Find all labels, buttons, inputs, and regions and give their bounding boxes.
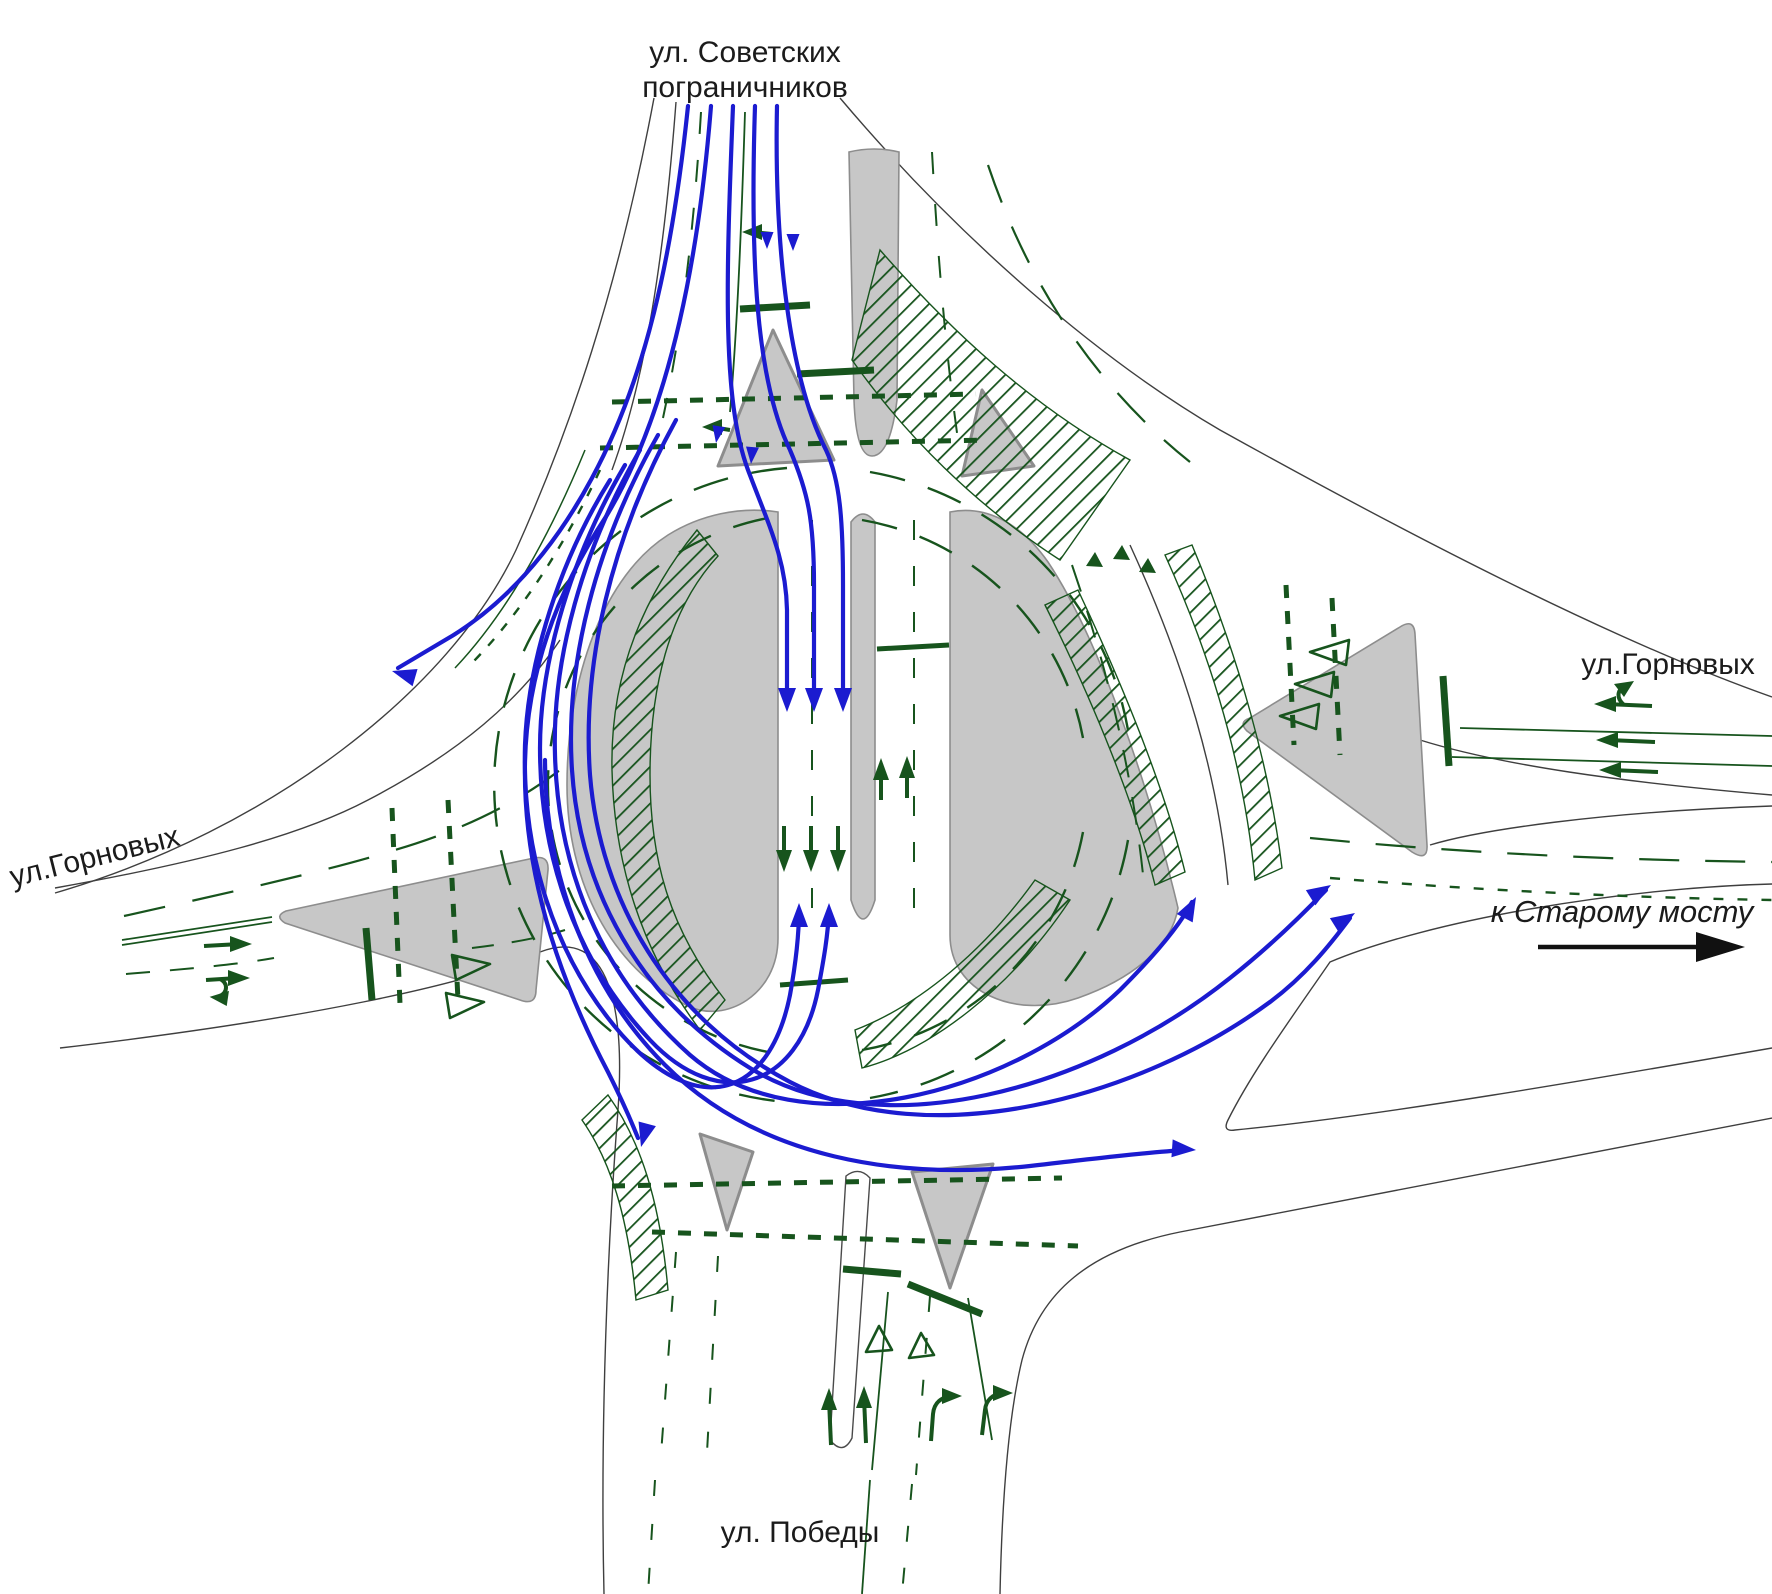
crosswalk-south-a	[612, 1178, 1062, 1186]
lane-arrow-head	[230, 936, 252, 952]
lane-arrow-head	[1596, 732, 1618, 748]
route-arrowhead	[778, 688, 796, 712]
stopline-south-2	[908, 1284, 982, 1314]
east-entry-line-2	[1452, 757, 1772, 766]
route-arrowhead	[834, 688, 852, 712]
route-arrowhead	[1306, 877, 1336, 905]
edge-northwest	[55, 98, 654, 893]
chevron-zone-south-entry	[582, 1095, 668, 1300]
stopline-north-2	[797, 370, 874, 374]
edge-southwest	[60, 947, 620, 1594]
edge-east-entry-bottom	[1420, 740, 1772, 795]
lane-arrow-head	[210, 984, 235, 1009]
lane-arrow-head	[899, 756, 915, 778]
direction-label-east: к Старому мосту	[1491, 894, 1756, 929]
lane-arrow-head	[803, 850, 819, 872]
roundabout-scheme: ул. Советских пограничников ул.Горновых …	[0, 0, 1772, 1594]
route-arrowhead	[1330, 905, 1360, 933]
yield-tick-icon	[1113, 545, 1130, 560]
west-entry-dash	[126, 958, 274, 974]
corridor-median-island	[851, 514, 875, 919]
street-label-south: ул. Победы	[721, 1516, 880, 1549]
lane-arrow-head	[1599, 762, 1621, 778]
route-arrowhead	[820, 903, 838, 927]
south-exit-dash-2	[706, 1256, 718, 1470]
south-turn-lane-line	[968, 1298, 992, 1440]
west-double-line-a	[122, 917, 272, 940]
traffic-diagram-canvas: ул. Советских пограничников ул.Горновых …	[0, 0, 1772, 1594]
stopline-north-1	[740, 305, 810, 309]
yield-tick-icon	[1139, 558, 1156, 573]
route-mid-arrowhead	[761, 232, 774, 249]
corridor-bar-north	[877, 645, 949, 649]
stopline-east	[1443, 676, 1449, 766]
lane-arrow-head	[1594, 696, 1616, 712]
lane-arrow-head	[856, 1386, 872, 1408]
route-mid-arrowhead	[787, 234, 800, 251]
east-exit-longdash	[1310, 838, 1772, 862]
chevron-zone-northeast	[852, 250, 1130, 560]
direction-east-arrow-icon	[1538, 932, 1745, 962]
street-label-west: ул.Горновых	[7, 820, 183, 894]
lane-arrow-head	[830, 850, 846, 872]
street-label-north-line2: пограничников	[642, 71, 848, 104]
lane-arrow-head	[993, 1385, 1013, 1401]
south-entry-dash	[916, 1296, 930, 1475]
south-entry-line	[872, 1292, 888, 1470]
edge-east-exit-top	[1430, 806, 1772, 845]
route-arrowhead	[805, 688, 823, 712]
route-arrowhead	[1171, 1139, 1196, 1159]
arrow-head	[1696, 932, 1745, 962]
yield-triangle-icon	[909, 1333, 934, 1358]
edge-southeast-ramp	[1000, 1118, 1772, 1594]
street-label-north-line1: ул. Советских	[649, 36, 840, 69]
yield-triangle-icon	[866, 1326, 892, 1352]
yield-triangle-icon	[446, 993, 484, 1018]
yield-tick-icon	[1086, 552, 1103, 567]
stopline-south-1	[843, 1269, 901, 1274]
route-arrowhead	[790, 903, 808, 927]
street-label-east: ул.Горновых	[1581, 648, 1755, 681]
lane-arrow-right-turn-icon	[931, 1396, 952, 1441]
lane-arrow-head	[942, 1388, 962, 1404]
lane-arrow-head	[228, 970, 250, 986]
south-exit-dash-3	[648, 1480, 655, 1594]
west-double-line-b	[122, 922, 272, 945]
south-entry-dash-2	[902, 1484, 912, 1594]
